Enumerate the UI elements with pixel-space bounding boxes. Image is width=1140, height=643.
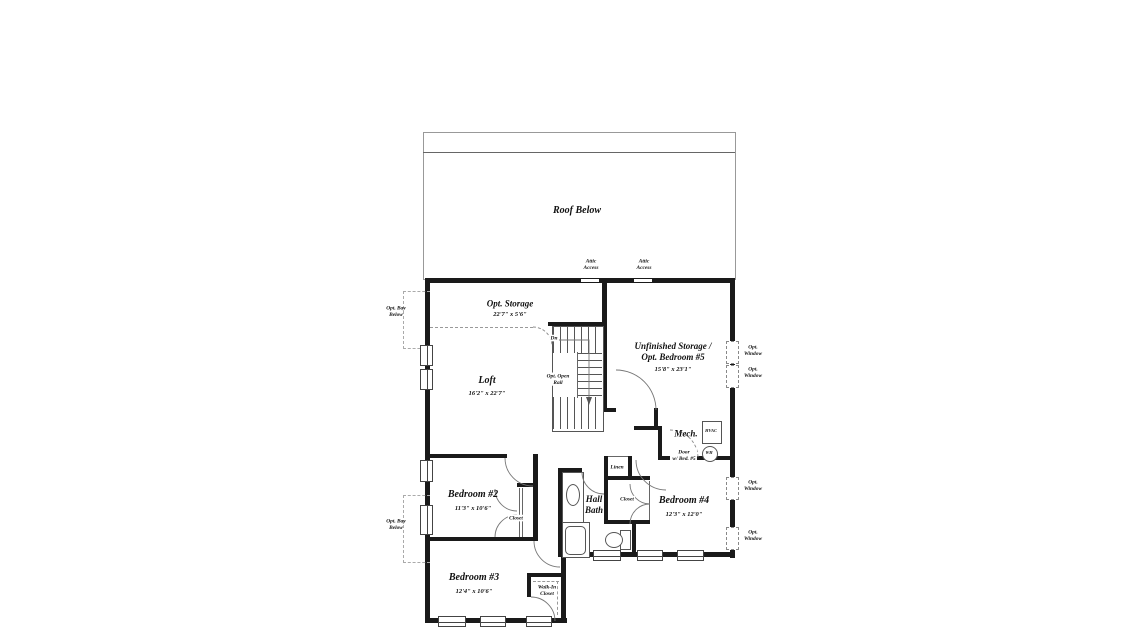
- room-name-unfinished-storage: Unfinished Storage / Opt. Bedroom #5: [634, 341, 711, 363]
- closet-door-arc: [495, 489, 517, 511]
- stair-down-label: Dn: [549, 335, 558, 341]
- opt-open-rail-label: Opt. Open Rail: [545, 373, 570, 386]
- room-name-opt-storage: Opt. Storage: [487, 299, 534, 310]
- water-heater-label: WH: [705, 450, 712, 455]
- room-dims-bedroom3: 12'4" x 10'6": [456, 587, 493, 595]
- opt-window-label: Opt. Window: [744, 344, 762, 357]
- stair-down-arrow: [557, 340, 589, 399]
- door-swing-layer: [0, 0, 1140, 643]
- room-dims-unfinished-storage: 15'8" x 23'1": [655, 365, 692, 373]
- walk-in-closet-label: Walk-In Closet: [537, 584, 558, 597]
- closet-label-bedroom4: Closet: [619, 496, 635, 502]
- door-bed5-note: Door w/ Bed. #5: [671, 449, 697, 462]
- room-name-hall-bath: Hall Bath: [585, 494, 603, 516]
- opt-window-label: Opt. Window: [744, 479, 762, 492]
- room-name-bedroom4: Bedroom #4: [659, 495, 709, 507]
- room-dims-bedroom4: 12'3" x 12'0": [666, 510, 703, 518]
- closet-door-arc: [531, 597, 555, 621]
- door-arc: [636, 460, 666, 490]
- hvac-label: HVAC: [705, 428, 717, 433]
- attic-access-label: Attic Access: [584, 258, 599, 271]
- room-dims-loft: 16'2" x 22'7": [469, 389, 506, 397]
- door-arc: [534, 541, 560, 567]
- door-arc: [616, 370, 656, 410]
- room-name-bedroom2: Bedroom #2: [448, 489, 498, 501]
- attic-access-label: Attic Access: [637, 258, 652, 271]
- room-dims-opt-storage: 22'7" x 5'6": [493, 310, 526, 318]
- opt-bay-below-label: Opt. Bay Below: [386, 518, 406, 531]
- door-arc: [582, 472, 604, 494]
- room-name-bedroom3: Bedroom #3: [449, 572, 499, 584]
- room-name-loft: Loft: [478, 375, 495, 387]
- opt-bay-below-label: Opt. Bay Below: [386, 305, 406, 318]
- opt-window-label: Opt. Window: [744, 366, 762, 379]
- roof-label: Roof Below: [553, 205, 601, 217]
- door-arc: [505, 458, 533, 486]
- room-name-mech: Mech.: [674, 429, 697, 440]
- floor-plan: Roof Below Attic Access Attic Access Opt…: [0, 0, 1140, 643]
- opt-window-label: Opt. Window: [744, 529, 762, 542]
- stair-arrow-head: [586, 397, 592, 405]
- room-dims-bedroom2: 11'3" x 10'6": [455, 504, 491, 512]
- closet-label-bedroom2: Closet: [508, 515, 524, 521]
- closet-door-arc: [630, 504, 650, 524]
- linen-label: Linen: [609, 464, 625, 470]
